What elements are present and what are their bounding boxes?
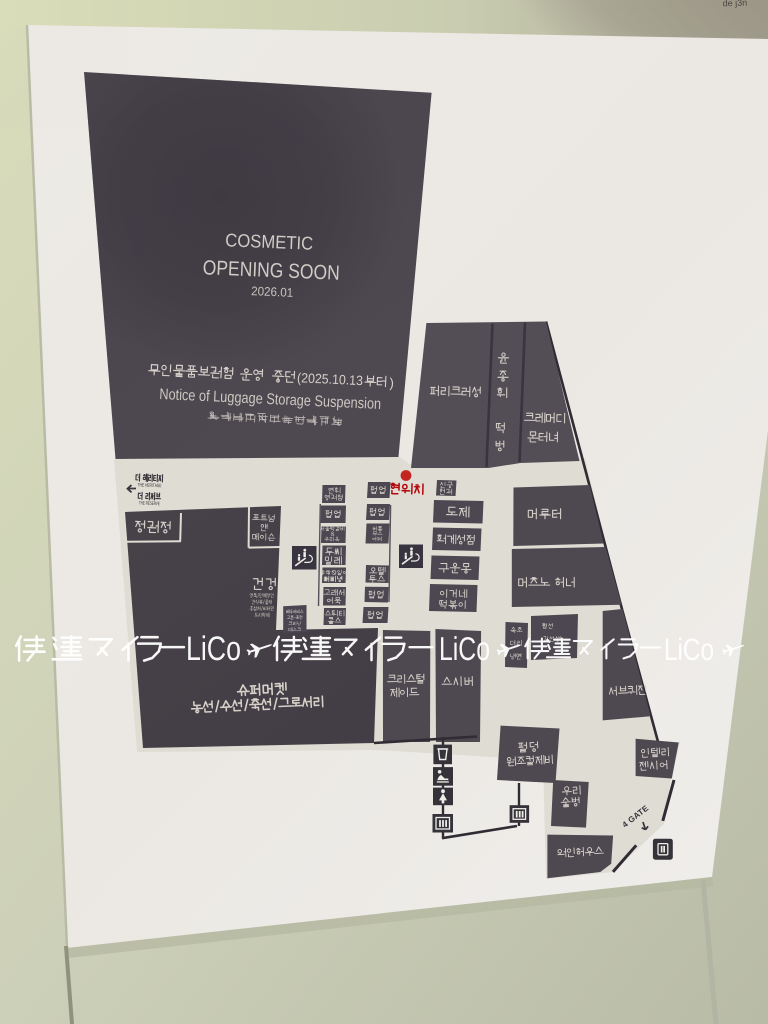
svg-text:COSMETIC: COSMETIC — [225, 229, 314, 254]
svg-text:THE RESERVE: THE RESERVE — [139, 500, 161, 507]
svg-text:(2025.10.13: (2025.10.13 — [297, 370, 364, 388]
svg-text:LiCo: LiCo — [664, 632, 714, 667]
svg-text:LiCo: LiCo — [439, 630, 490, 667]
svg-text:2026.01: 2026.01 — [251, 284, 294, 300]
svg-text:): ) — [389, 375, 394, 390]
svg-text:THE HERITAGE: THE HERITAGE — [137, 482, 162, 489]
svg-text:LiCo: LiCo — [186, 630, 241, 668]
svg-text:de j3n: de j3n — [722, 0, 747, 8]
